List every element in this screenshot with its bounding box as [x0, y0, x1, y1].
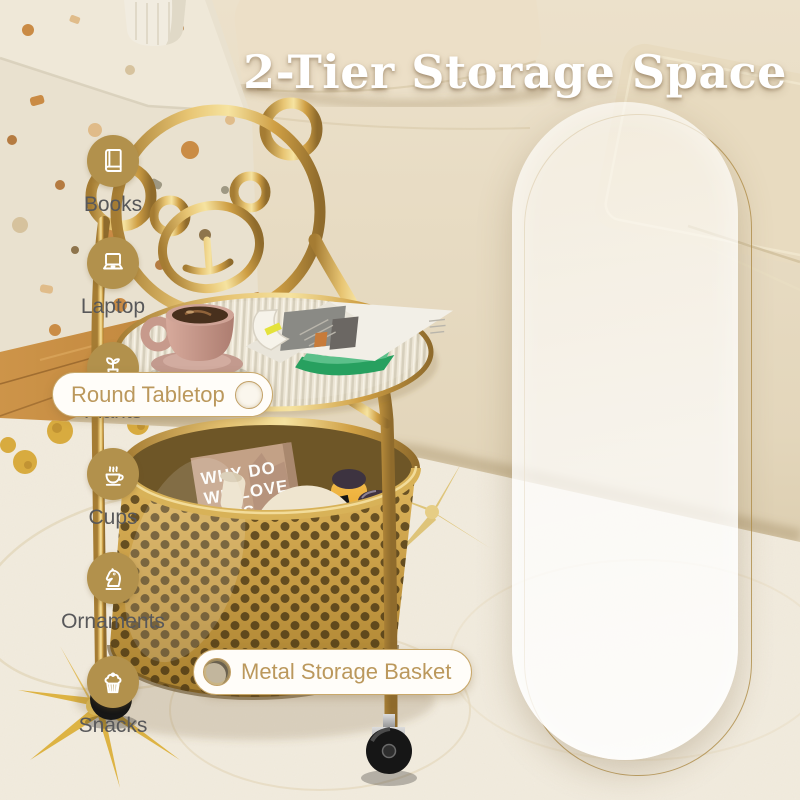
panel-item-snacks: Snacks: [0, 656, 226, 738]
book-icon: [87, 135, 139, 187]
cupcake-icon: [87, 656, 139, 708]
chess-knight-icon: [87, 552, 139, 604]
callout-anchor-circle: [235, 381, 263, 409]
callout-metal-storage-basket: Metal Storage Basket: [193, 649, 472, 695]
callout-anchor-circle: [203, 658, 231, 686]
white-vase: [124, 0, 186, 46]
panel-item-cups: Cups: [0, 448, 226, 530]
page-title: 2-Tier Storage Space: [225, 47, 800, 98]
panel-item-laptop: Laptop: [0, 237, 226, 319]
callout-label: Metal Storage Basket: [241, 659, 451, 685]
panel-item-books: Books: [0, 135, 226, 217]
panel-item-label: Laptop: [81, 295, 145, 319]
product-marketing-image: WHY DO WE LOVE CATS: [0, 0, 800, 800]
panel-item-ornaments: Ornaments: [0, 552, 226, 634]
panel-item-label: Cups: [88, 506, 137, 530]
callout-round-tabletop: Round Tabletop: [52, 372, 273, 417]
panel-item-label: Books: [84, 193, 142, 217]
callout-label: Round Tabletop: [71, 382, 225, 408]
coffee-cup-icon: [87, 448, 139, 500]
panel-item-label: Ornaments: [61, 610, 165, 634]
laptop-icon: [87, 237, 139, 289]
panel-item-label: Snacks: [79, 714, 148, 738]
feature-glass-panel: [512, 102, 738, 760]
